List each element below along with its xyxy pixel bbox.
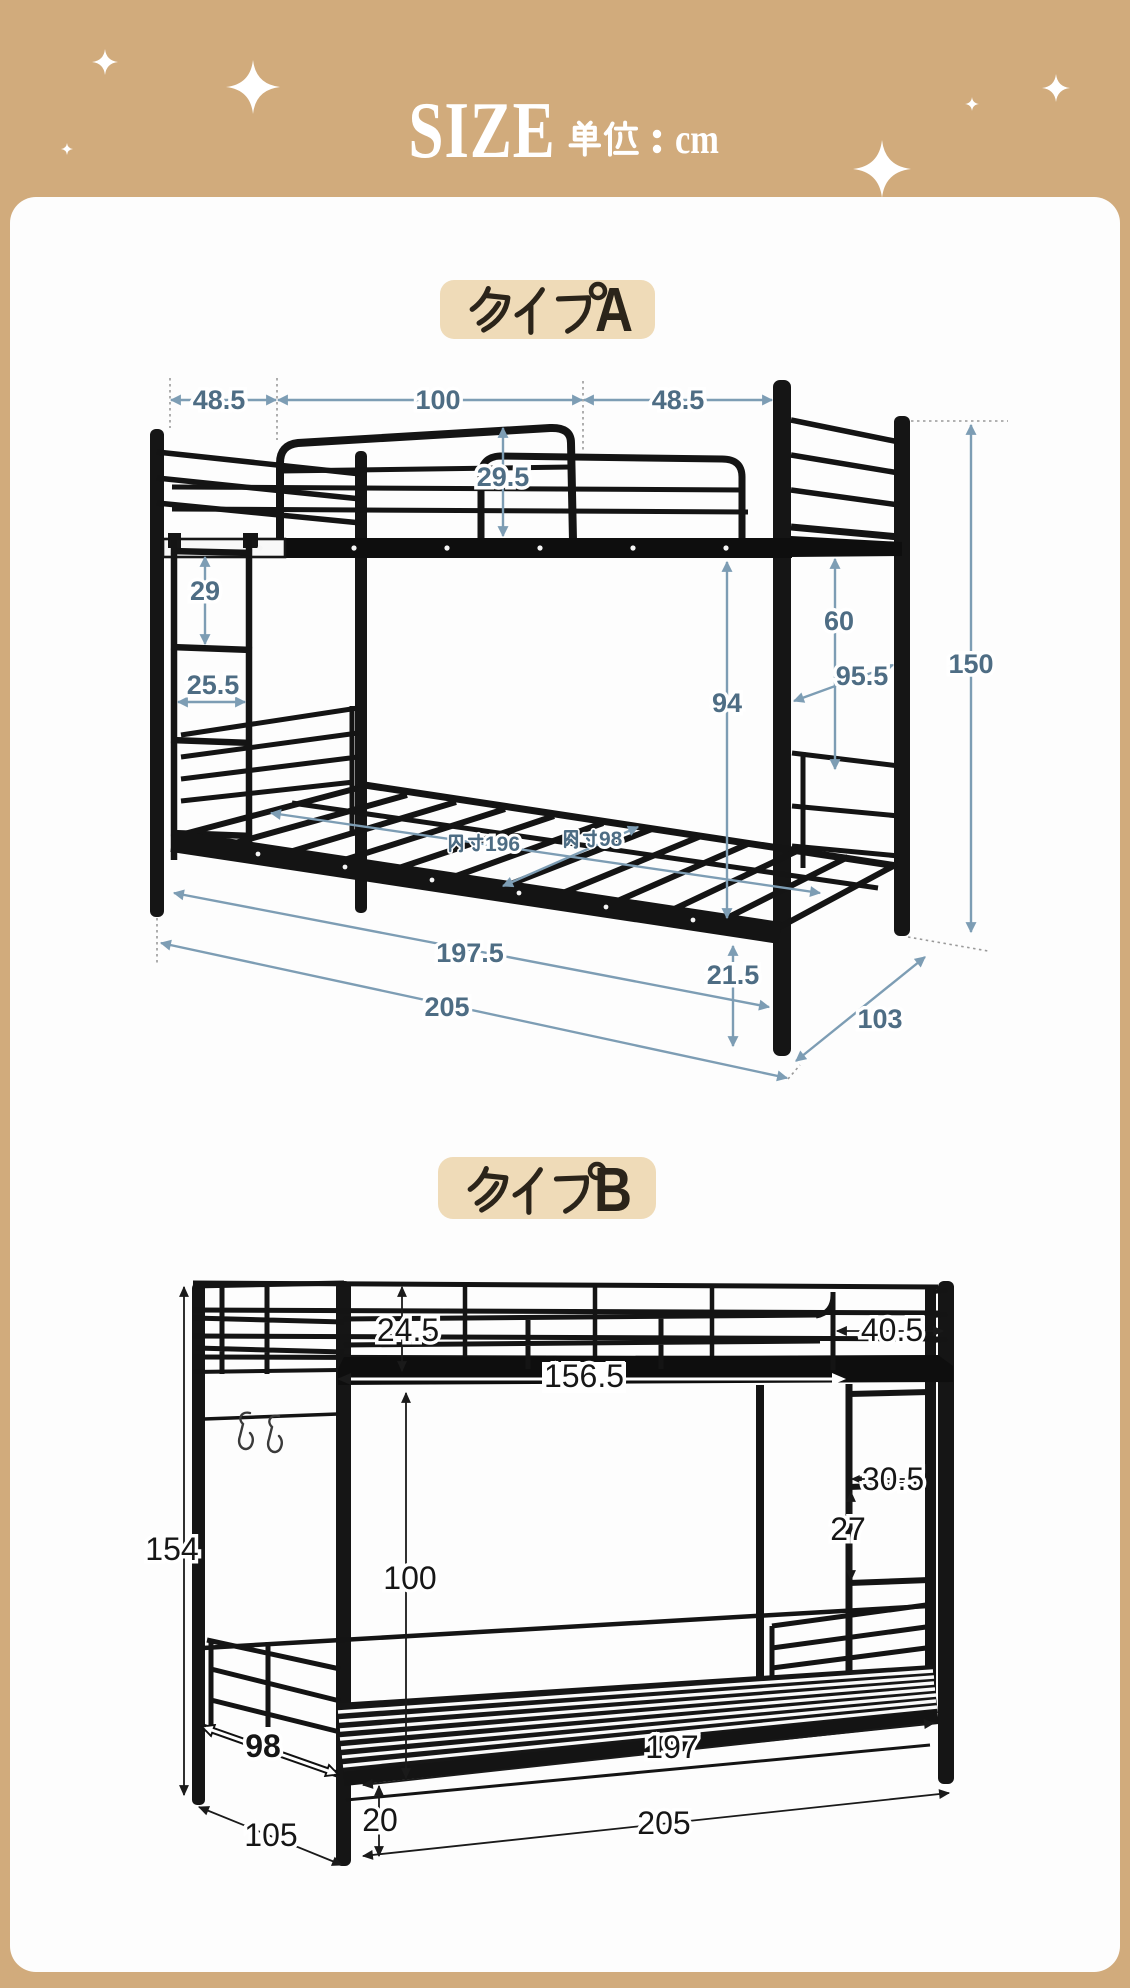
svg-text:205: 205	[424, 992, 469, 1022]
svg-text:29: 29	[190, 576, 220, 606]
svg-text:cm: cm	[675, 117, 719, 163]
svg-text:94: 94	[712, 688, 742, 718]
svg-text:SIZE: SIZE	[408, 86, 555, 175]
svg-text:103: 103	[857, 1004, 902, 1034]
svg-text:98: 98	[599, 828, 623, 851]
svg-text:20: 20	[362, 1802, 398, 1838]
svg-text:48.5: 48.5	[652, 385, 705, 415]
svg-text:197.5: 197.5	[436, 938, 504, 968]
svg-text:150: 150	[948, 649, 993, 679]
svg-text:98: 98	[245, 1728, 281, 1764]
svg-text:27: 27	[830, 1511, 866, 1547]
svg-text:21.5: 21.5	[707, 960, 760, 990]
svg-text:100: 100	[415, 385, 460, 415]
svg-text:30.5: 30.5	[862, 1461, 924, 1497]
svg-text:24.5: 24.5	[377, 1312, 439, 1348]
svg-text:156.5: 156.5	[544, 1358, 624, 1394]
svg-text:40.5: 40.5	[861, 1312, 923, 1348]
svg-text:60: 60	[824, 606, 854, 636]
svg-text:105: 105	[244, 1817, 297, 1853]
svg-text:48.5: 48.5	[193, 385, 246, 415]
svg-text:29.5: 29.5	[477, 462, 530, 492]
svg-text:100: 100	[383, 1560, 436, 1596]
svg-text:154: 154	[145, 1531, 198, 1567]
svg-text:25.5: 25.5	[187, 670, 240, 700]
svg-text:196: 196	[485, 833, 520, 856]
svg-text:95.5: 95.5	[836, 661, 889, 691]
svg-text:205: 205	[637, 1805, 690, 1841]
svg-text:197: 197	[645, 1729, 698, 1765]
